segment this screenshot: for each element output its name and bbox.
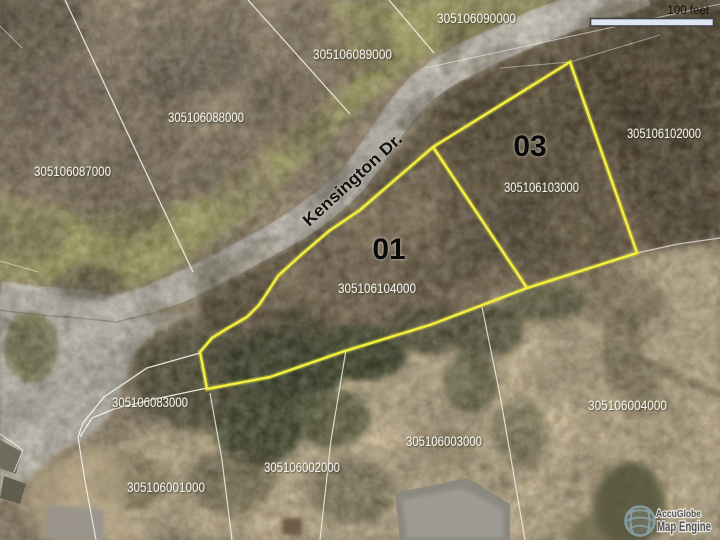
svg-text:305106001000: 305106001000 <box>127 479 205 495</box>
svg-text:305106003000: 305106003000 <box>406 433 482 449</box>
svg-text:305106103000: 305106103000 <box>504 179 579 195</box>
svg-text:305106004000: 305106004000 <box>588 397 667 413</box>
svg-text:305106088000: 305106088000 <box>168 109 244 125</box>
svg-text:305106104000: 305106104000 <box>338 280 416 296</box>
svg-text:Map Engine: Map Engine <box>657 519 711 534</box>
svg-text:03: 03 <box>513 130 546 163</box>
svg-text:305106089000: 305106089000 <box>313 46 392 62</box>
svg-text:100 feet: 100 feet <box>667 5 709 17</box>
svg-text:305106002000: 305106002000 <box>264 459 340 475</box>
svg-text:305106102000: 305106102000 <box>627 125 701 141</box>
svg-text:305106083000: 305106083000 <box>112 394 188 410</box>
svg-text:01: 01 <box>372 233 405 266</box>
svg-text:305106090000: 305106090000 <box>437 10 516 26</box>
svg-text:305106087000: 305106087000 <box>34 163 111 179</box>
